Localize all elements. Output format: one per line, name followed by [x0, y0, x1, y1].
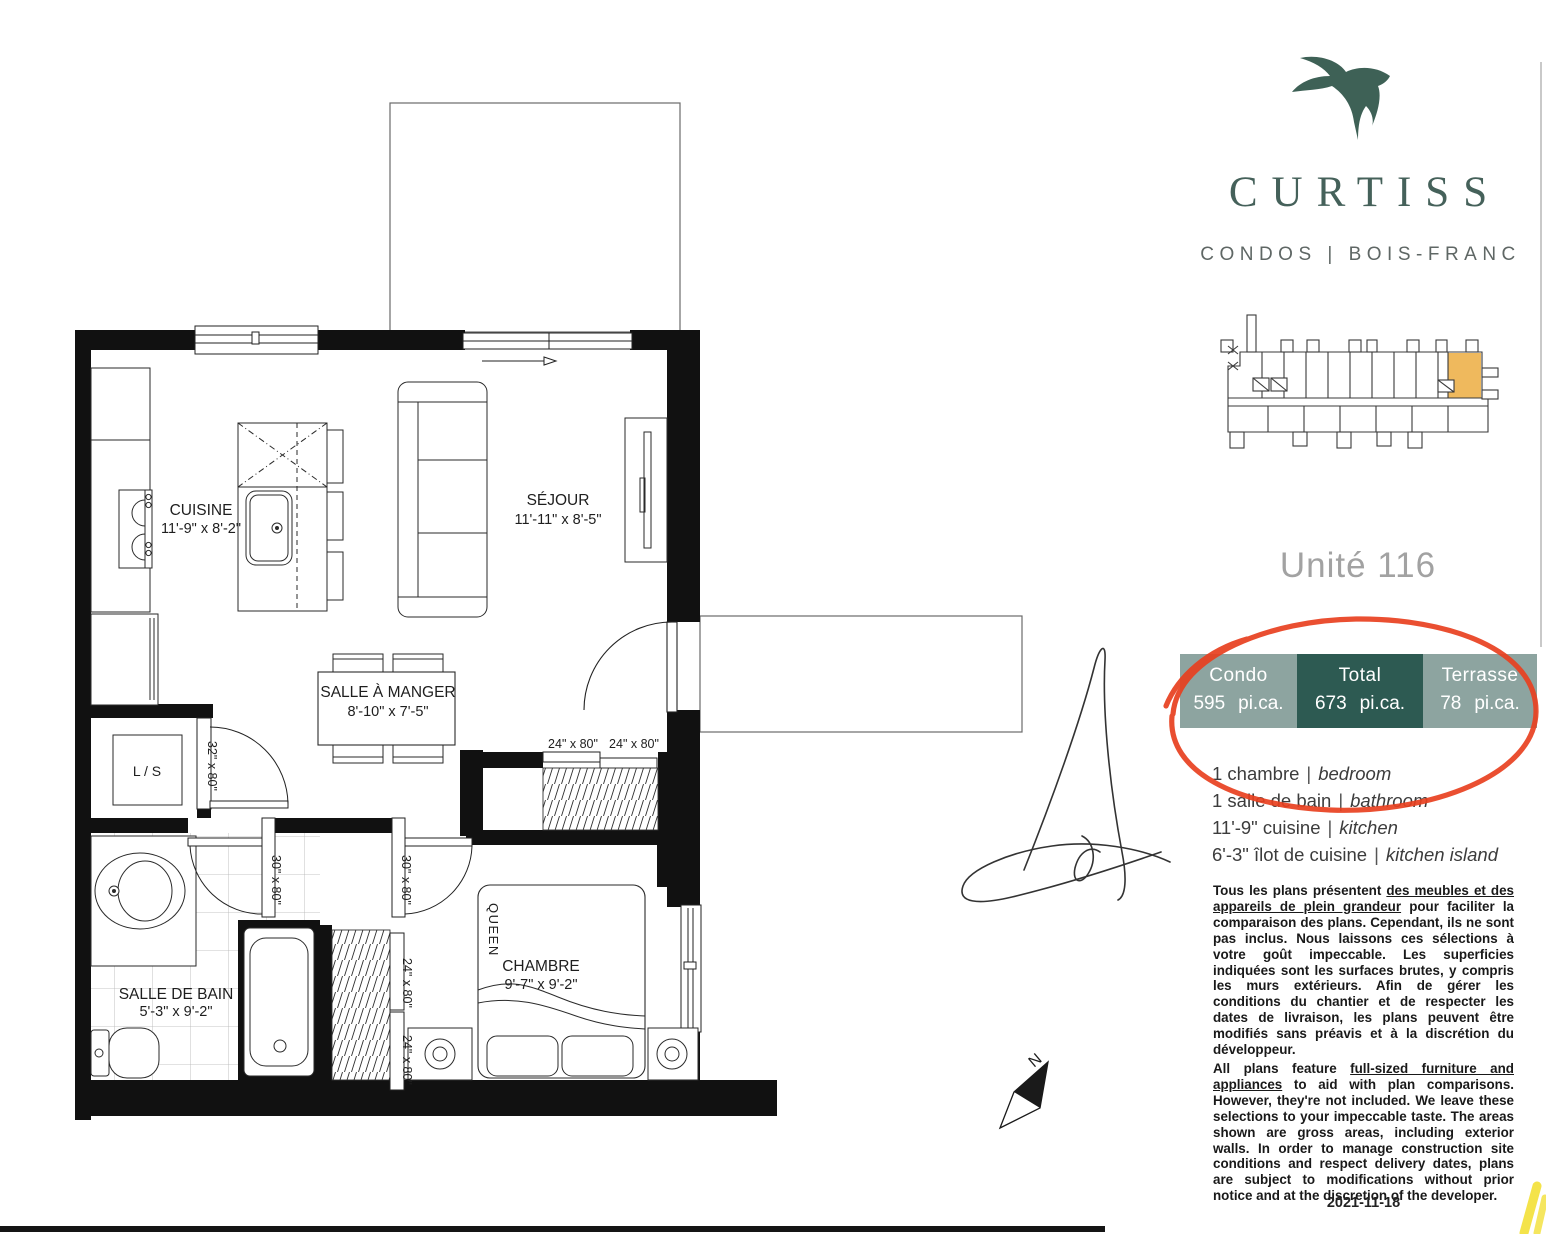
vanity: [91, 836, 196, 966]
fridge: [91, 614, 158, 705]
door-size-labels: 32" x 80" 30" x 80" 30" x 80" 24" x 80" …: [205, 737, 659, 1085]
room-labels: CUISINE 11'-9" x 8'-2" SÉJOUR 11'-11" x …: [119, 492, 602, 1020]
feature-line: 11'-9" cuisine|kitchen: [1212, 814, 1542, 841]
kitchen-island: [238, 423, 327, 611]
dining-chairs: [333, 654, 443, 763]
area-label: Terrasse: [1423, 665, 1537, 687]
corridor-outline: [700, 616, 1022, 732]
bathroom-tiles: [91, 833, 320, 1080]
signature: [962, 648, 1170, 901]
area-label: Condo: [1180, 665, 1297, 687]
floor-plan: CUISINE 11'-9" x 8'-2" SÉJOUR 11'-11" x …: [75, 103, 1022, 1120]
area-summary-row: Condo 595pi.ca. Total 673pi.ca. Terrasse…: [1180, 654, 1537, 728]
room-salle-de-bain-label: SALLE DE BAIN: [119, 986, 234, 1003]
bedroom-window: [681, 905, 701, 1032]
area-box-total: Total 673pi.ca.: [1297, 654, 1423, 728]
toilet: [91, 1028, 159, 1078]
kitchen-counter: [91, 368, 150, 612]
area-unit: pi.ca.: [1238, 693, 1283, 714]
plan-date: 2021-11-18: [1213, 1195, 1514, 1211]
door-size-hall-2: 24" x 80": [609, 737, 659, 751]
laundry-label: L / S: [133, 763, 161, 779]
room-sejour-dims: 11'-11" x 8'-5": [514, 512, 601, 528]
brand-name: CURTISS: [1180, 168, 1536, 217]
swallow-logo-icon: [1292, 57, 1390, 140]
area-value: 673: [1315, 693, 1347, 714]
room-chambre-label: CHAMBRE: [502, 958, 580, 975]
north-arrow-icon: N: [1000, 1051, 1048, 1128]
door-size-ls: 32" x 80": [205, 741, 219, 791]
area-label: Total: [1297, 665, 1423, 687]
sofa: [398, 382, 487, 617]
brand-tagline: CONDOS | BOIS-FRANC: [1180, 244, 1536, 266]
hall-closet: [543, 752, 658, 830]
features-list: 1 chambre|bedroom 1 salle de bain|bathro…: [1212, 760, 1542, 868]
laundry-door: [197, 718, 288, 809]
stove: [119, 490, 152, 568]
nightstand-right: [648, 1028, 698, 1080]
island-sink: [246, 491, 292, 565]
disclaimer-french: Tous les plans présentent des meubles et…: [1213, 883, 1514, 1058]
tv-unit: [625, 418, 667, 562]
area-unit: pi.ca.: [1360, 693, 1405, 714]
room-salle-a-manger-dims: 8'-10" x 7'-5": [347, 704, 428, 720]
yellow-highlight-mark: [1537, 1198, 1545, 1233]
bathroom-sink: [95, 853, 185, 929]
door-size-hall-1: 24" x 80": [548, 737, 598, 751]
bed: [478, 885, 645, 1078]
feature-line: 1 chambre|bedroom: [1212, 760, 1542, 787]
room-chambre-dims: 9'-7" x 9'-2": [504, 977, 577, 993]
terrace-outline: [390, 103, 680, 332]
room-cuisine-label: CUISINE: [170, 502, 233, 519]
yellow-highlight-mark: [1524, 1186, 1537, 1233]
feature-line: 1 salle de bain|bathroom: [1212, 787, 1542, 814]
building-key-plan: [1221, 315, 1498, 448]
door-size-bath: 30" x 80": [269, 855, 283, 905]
area-value: 78: [1440, 693, 1461, 714]
page-root: CURTISS CONDOS | BOIS-FRANC Unité 116 Co…: [0, 0, 1546, 1234]
room-sejour-label: SÉJOUR: [527, 492, 590, 509]
key-plan-highlighted-unit: [1448, 353, 1481, 398]
north-letter: N: [1026, 1051, 1046, 1071]
area-box-terrasse: Terrasse 78pi.ca.: [1423, 654, 1537, 728]
room-salle-de-bain-dims: 5'-3" x 9'-2": [139, 1004, 212, 1020]
door-size-linen-2: 24" x 80": [400, 1035, 414, 1085]
queen-bed-label: QUEEN: [486, 903, 501, 957]
island-stools: [327, 430, 343, 600]
scan-fold-line: [1540, 62, 1542, 647]
scan-edge-line: [0, 1226, 1105, 1232]
laundry-closet: [113, 735, 182, 805]
room-cuisine-dims: 11'-9" x 8'-2": [161, 521, 241, 537]
sliding-door: [463, 333, 632, 365]
unit-title: Unité 116: [1180, 546, 1536, 586]
kitchen-window: [195, 326, 318, 354]
door-size-linen-1: 24" x 80": [400, 958, 414, 1008]
area-value: 595: [1193, 693, 1225, 714]
feature-line: 6'-3" îlot de cuisine|kitchen island: [1212, 841, 1542, 868]
room-salle-a-manger-label: SALLE À MANGER: [320, 684, 455, 701]
bedroom-door: [392, 818, 472, 917]
entry-door: [584, 622, 677, 712]
dining-table: [318, 672, 455, 745]
nightstand-left: [408, 1028, 472, 1080]
door-size-bedroom: 30" x 80": [399, 855, 413, 905]
linen-closet: [332, 930, 404, 1090]
bathroom-door: [188, 818, 275, 917]
bathtub: [244, 928, 314, 1076]
area-box-condo: Condo 595pi.ca.: [1180, 654, 1297, 728]
area-unit: pi.ca.: [1474, 693, 1519, 714]
walls: [75, 330, 777, 1120]
disclaimer-english: All plans feature full-sized furniture a…: [1213, 1061, 1514, 1204]
